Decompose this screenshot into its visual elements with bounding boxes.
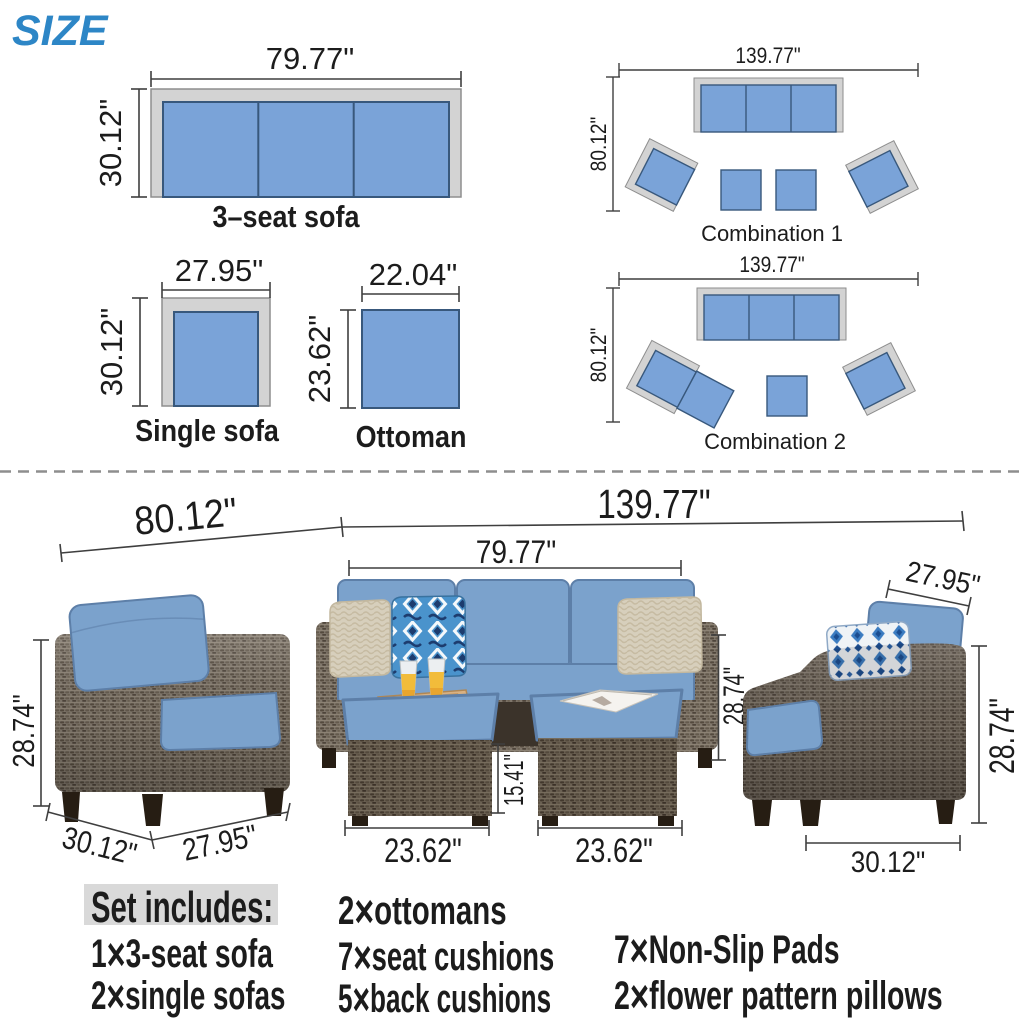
- svg-text:15.41": 15.41": [499, 754, 530, 806]
- svg-text:27.95": 27.95": [175, 253, 264, 288]
- svg-text:23.62": 23.62": [384, 831, 462, 870]
- svg-text:2×flower pattern pillows: 2×flower pattern pillows: [614, 972, 943, 1023]
- svg-text:SIZE: SIZE: [12, 7, 109, 55]
- svg-text:23.62": 23.62": [575, 831, 653, 870]
- svg-text:79.77": 79.77": [266, 41, 355, 76]
- svg-text:Combination 1: Combination 1: [701, 221, 843, 246]
- svg-text:28.74": 28.74": [982, 698, 1021, 774]
- svg-text:30.12": 30.12": [93, 99, 128, 188]
- svg-text:139.77": 139.77": [739, 253, 804, 278]
- svg-text:7×Non-Slip Pads: 7×Non-Slip Pads: [614, 926, 839, 977]
- svg-text:79.77": 79.77": [476, 535, 556, 570]
- svg-text:23.62": 23.62": [302, 315, 337, 404]
- svg-text:80.12": 80.12": [587, 328, 612, 383]
- svg-text:2×ottomans: 2×ottomans: [338, 885, 507, 937]
- svg-text:Single sofa: Single sofa: [135, 414, 280, 448]
- svg-text:30.12": 30.12": [94, 308, 129, 397]
- svg-text:80.12": 80.12": [587, 117, 612, 172]
- svg-text:28.74": 28.74": [7, 694, 42, 767]
- svg-text:Combination 2: Combination 2: [704, 429, 846, 454]
- svg-text:5×back cushions: 5×back cushions: [338, 975, 551, 1024]
- svg-text:2×single sofas: 2×single sofas: [91, 971, 285, 1022]
- svg-text:30.12": 30.12": [851, 845, 926, 878]
- svg-text:Ottoman: Ottoman: [356, 420, 467, 454]
- svg-text:Set includes:: Set includes:: [91, 882, 273, 931]
- svg-text:22.04": 22.04": [369, 257, 458, 292]
- svg-text:139.77": 139.77": [735, 44, 800, 69]
- svg-text:3–seat sofa: 3–seat sofa: [213, 200, 361, 234]
- svg-text:139.77": 139.77": [597, 481, 710, 527]
